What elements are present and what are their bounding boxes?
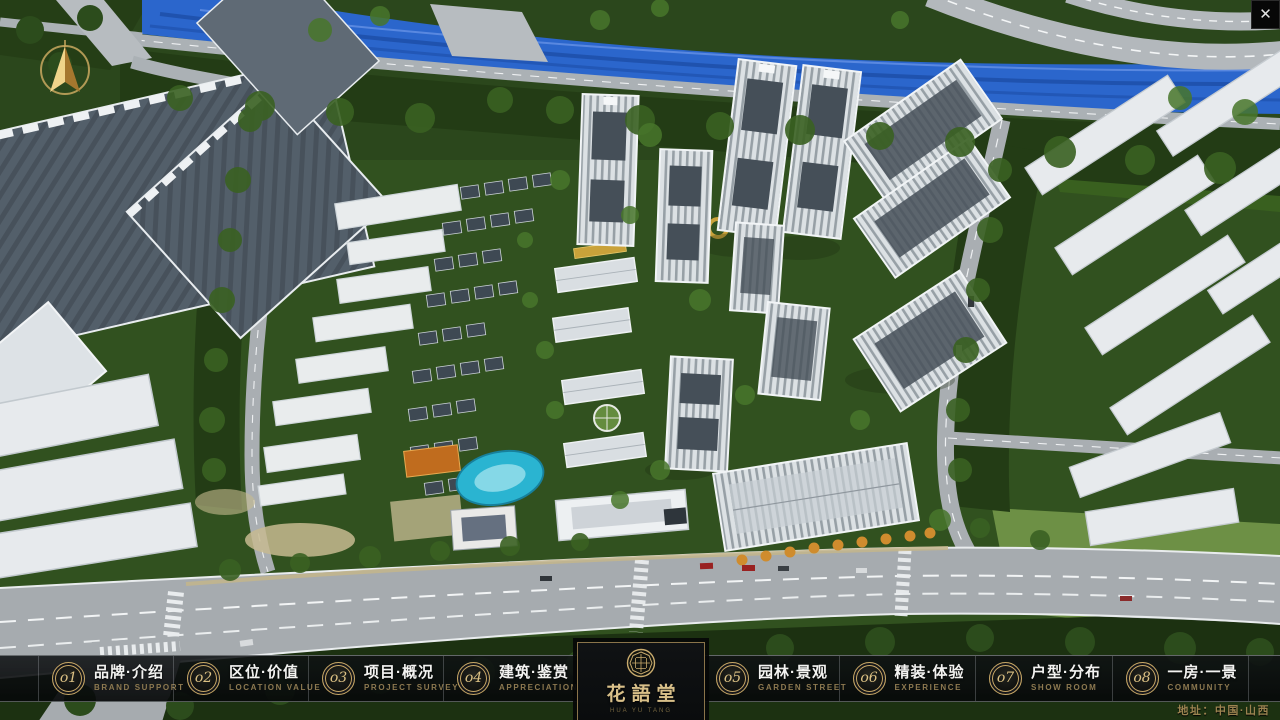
nav-item-project-overview[interactable]: o3 项目·概况 PROJECT SURVEY bbox=[308, 656, 443, 701]
nav-number-badge: o5 bbox=[716, 662, 749, 695]
nav-item-label: 品牌·介绍 bbox=[94, 665, 173, 680]
nav-item-subtitle: EXPERIENCE bbox=[895, 684, 965, 692]
nav-number-badge: o2 bbox=[187, 662, 220, 695]
nav-item-brand-intro[interactable]: o1 品牌·介绍 BRAND SUPPORT bbox=[38, 656, 173, 701]
nav-item-garden-landscape[interactable]: o5 园林·景观 GARDEN STREET bbox=[702, 656, 839, 701]
nav-number-badge: o6 bbox=[853, 662, 886, 695]
nav-item-label: 园林·景观 bbox=[758, 665, 839, 680]
nav-item-subtitle: APPRECIATION bbox=[499, 684, 578, 692]
nav-number-badge: o8 bbox=[1126, 662, 1159, 695]
nav-item-location-value[interactable]: o2 区位·价值 LOCATION VALUE bbox=[173, 656, 308, 701]
nav-text: 建筑·鉴赏 APPRECIATION bbox=[499, 665, 578, 692]
project-address: 地址：中国·山西 bbox=[1177, 702, 1270, 718]
nav-item-floorplan-distribution[interactable]: o7 户型·分布 SHOW ROOM bbox=[975, 656, 1112, 701]
nav-item-interior-experience[interactable]: o6 精装·体验 EXPERIENCE bbox=[839, 656, 976, 701]
nav-number: o4 bbox=[465, 671, 482, 685]
nav-item-label: 区位·价值 bbox=[229, 665, 308, 680]
nav-item-subtitle: GARDEN STREET bbox=[758, 684, 839, 692]
nav-number: o8 bbox=[1133, 671, 1150, 685]
nav-number: o5 bbox=[724, 671, 741, 685]
nav-item-subtitle: PROJECT SURVEY bbox=[364, 684, 443, 692]
nav-text: 户型·分布 SHOW ROOM bbox=[1031, 665, 1101, 692]
nav-item-subtitle: LOCATION VALUE bbox=[229, 684, 308, 692]
nav-text: 一房·一景 COMMUNITY bbox=[1168, 665, 1238, 692]
nav-number-badge: o4 bbox=[457, 662, 490, 695]
nav-item-subtitle: COMMUNITY bbox=[1168, 684, 1238, 692]
nav-number: o6 bbox=[860, 671, 877, 685]
nav-item-label: 建筑·鉴赏 bbox=[499, 665, 578, 680]
nav-item-architecture-appreciation[interactable]: o4 建筑·鉴赏 APPRECIATION bbox=[443, 656, 578, 701]
nav-group-left: o1 品牌·介绍 BRAND SUPPORT o2 区位·价值 LOCATION… bbox=[38, 656, 578, 701]
nav-item-label: 精装·体验 bbox=[895, 665, 965, 680]
nav-number: o2 bbox=[195, 671, 212, 685]
nav-text: 精装·体验 EXPERIENCE bbox=[895, 665, 965, 692]
nav-item-label: 户型·分布 bbox=[1031, 665, 1101, 680]
project-logo[interactable]: 花語堂 HUA YU TANG bbox=[577, 642, 705, 720]
nav-number: o7 bbox=[997, 671, 1014, 685]
nav-text: 品牌·介绍 BRAND SUPPORT bbox=[94, 665, 173, 692]
nav-item-subtitle: BRAND SUPPORT bbox=[94, 684, 173, 692]
nav-number-badge: o1 bbox=[52, 662, 85, 695]
nav-item-label: 一房·一景 bbox=[1168, 665, 1238, 680]
nav-item-label: 项目·概况 bbox=[364, 665, 443, 680]
nav-text: 区位·价值 LOCATION VALUE bbox=[229, 665, 308, 692]
project-name-latin: HUA YU TANG bbox=[610, 708, 672, 714]
nav-item-one-room-one-view[interactable]: o8 一房·一景 COMMUNITY bbox=[1112, 656, 1249, 701]
close-button[interactable]: ✕ bbox=[1251, 0, 1280, 29]
nav-number: o3 bbox=[330, 671, 347, 685]
seal-emblem-icon bbox=[626, 648, 656, 678]
nav-number: o1 bbox=[60, 671, 77, 685]
nav-text: 园林·景观 GARDEN STREET bbox=[758, 665, 839, 692]
sales-presentation-screen: ✕ o1 品牌·介绍 BRAND SUPPORT o2 区位·价值 LOCATI… bbox=[0, 0, 1280, 720]
nav-text: 项目·概况 PROJECT SURVEY bbox=[364, 665, 443, 692]
project-name: 花語堂 bbox=[600, 679, 681, 706]
nav-item-subtitle: SHOW ROOM bbox=[1031, 684, 1101, 692]
nav-group-right: o5 园林·景观 GARDEN STREET o6 精装·体验 EXPERIEN… bbox=[702, 656, 1249, 701]
nav-number-badge: o7 bbox=[989, 662, 1022, 695]
aerial-masterplan-render bbox=[0, 0, 1280, 720]
nav-number-badge: o3 bbox=[322, 662, 355, 695]
